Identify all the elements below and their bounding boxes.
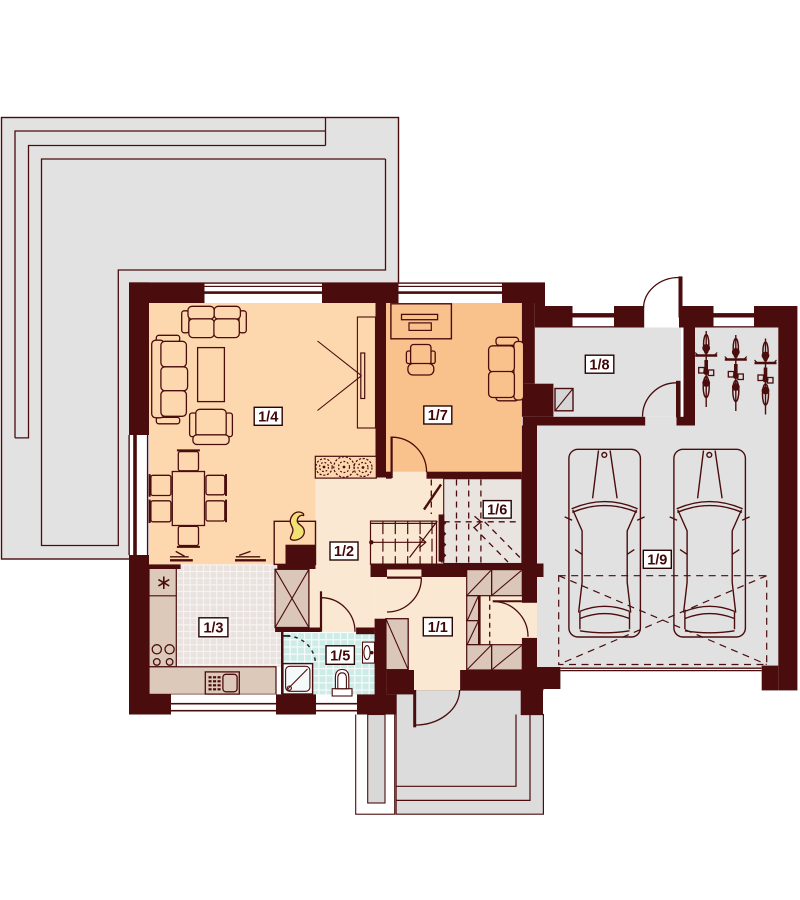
svg-text:1/8: 1/8 [589, 357, 609, 373]
svg-text:1/9: 1/9 [647, 553, 667, 569]
svg-text:1/7: 1/7 [428, 408, 448, 424]
svg-text:1/5: 1/5 [330, 648, 350, 664]
svg-text:1/4: 1/4 [258, 410, 278, 426]
svg-text:1/6: 1/6 [487, 502, 507, 518]
svg-text:1/1: 1/1 [428, 620, 448, 636]
svg-text:1/3: 1/3 [203, 621, 223, 637]
svg-text:1/2: 1/2 [334, 544, 354, 560]
